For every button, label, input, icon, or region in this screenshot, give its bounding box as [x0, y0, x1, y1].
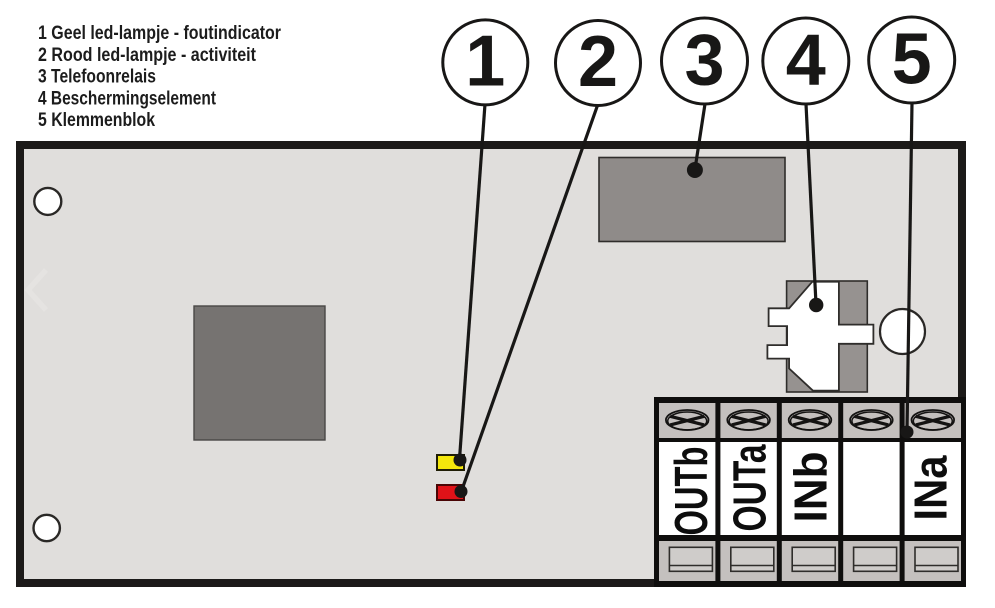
- svg-text:1 Geel led-lampje - foutindica: 1 Geel led-lampje - foutindicator: [38, 23, 281, 44]
- svg-text:OUTb: OUTb: [665, 447, 717, 536]
- svg-text:4 Beschermingselement: 4 Beschermingselement: [38, 89, 217, 110]
- svg-text:OUTa: OUTa: [724, 444, 776, 531]
- svg-text:INa: INa: [905, 455, 957, 520]
- svg-text:INb: INb: [785, 452, 837, 523]
- svg-text:5: 5: [892, 20, 932, 100]
- svg-text:2 Rood led-lampje - activiteit: 2 Rood led-lampje - activiteit: [38, 45, 257, 66]
- svg-text:2: 2: [578, 22, 618, 102]
- svg-text:5 Klemmenblok: 5 Klemmenblok: [38, 110, 155, 131]
- svg-text:4: 4: [786, 21, 826, 101]
- svg-text:1: 1: [465, 22, 505, 102]
- svg-text:3: 3: [684, 21, 724, 101]
- svg-text:3 Telefoonrelais: 3 Telefoonrelais: [38, 67, 156, 88]
